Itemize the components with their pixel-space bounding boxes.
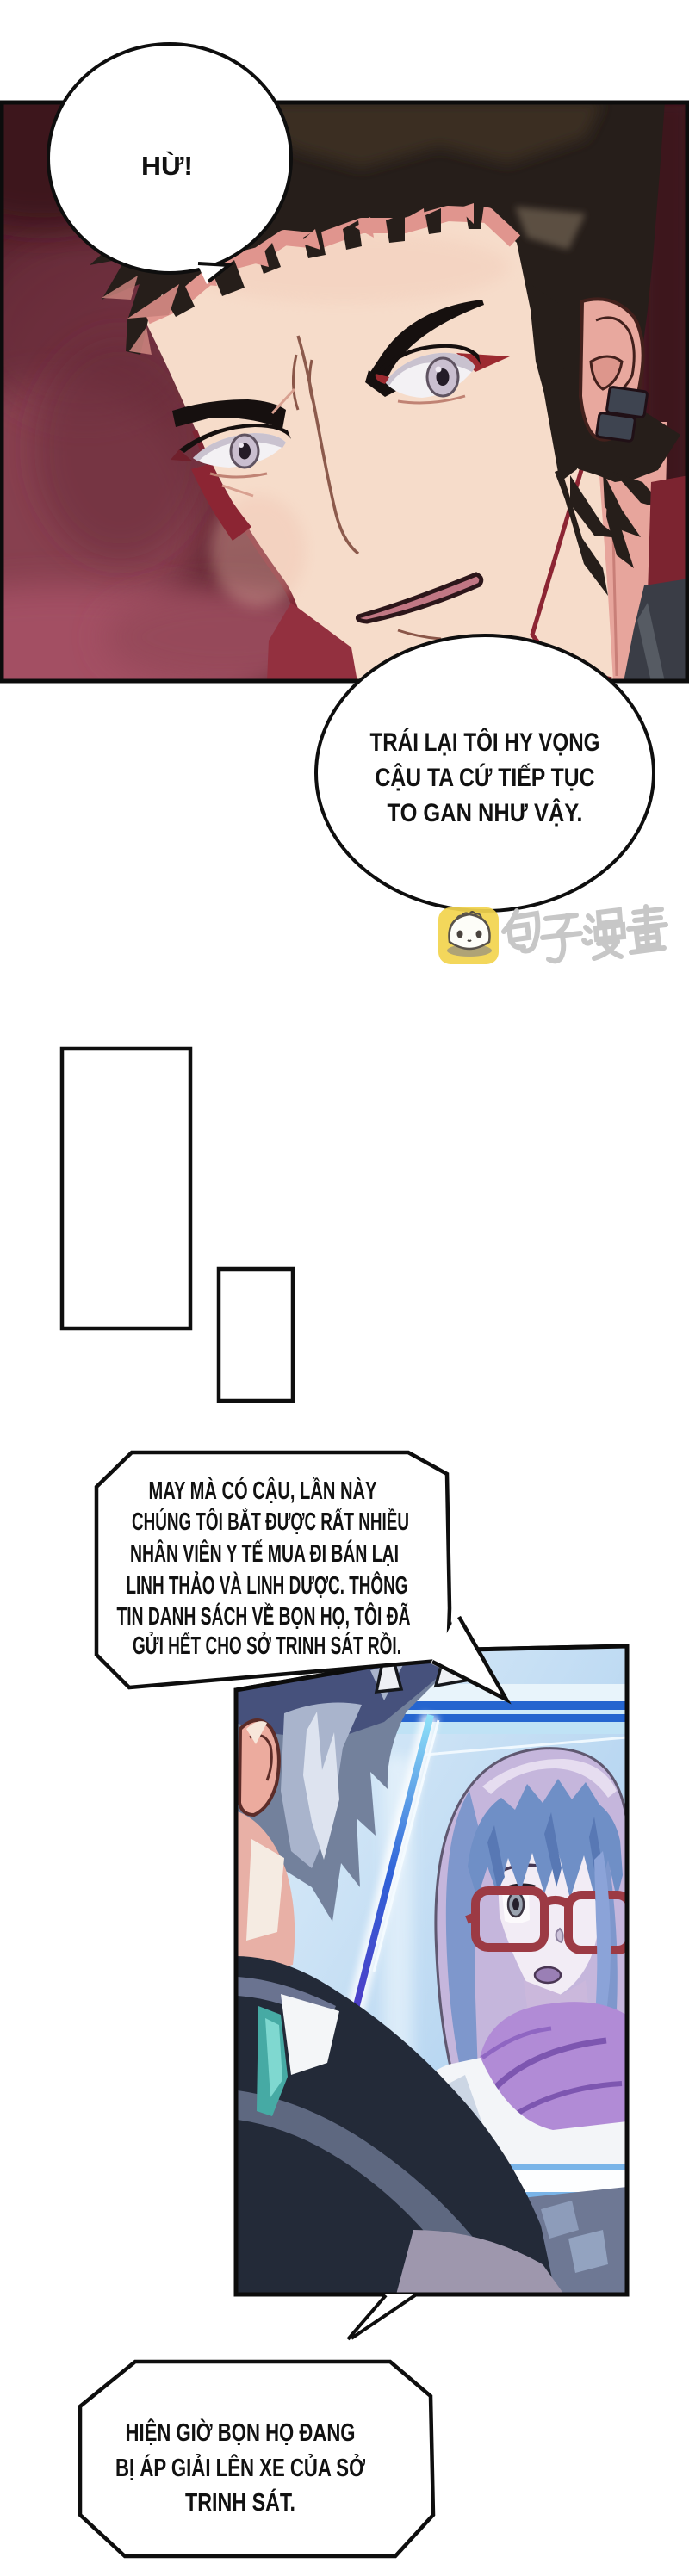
svg-text:TO GAN NHƯ VẬY.: TO GAN NHƯ VẬY.: [388, 798, 583, 827]
svg-text:CHÚNG TÔI BẮT ĐƯỢC RẤT NHIỀU: CHÚNG TÔI BẮT ĐƯỢC RẤT NHIỀU: [132, 1507, 409, 1536]
svg-text:BỊ ÁP GIẢI LÊN XE CỦA SỞ: BỊ ÁP GIẢI LÊN XE CỦA SỞ: [115, 2453, 365, 2482]
svg-text:LINH THẢO VÀ LINH DƯỢC. THÔNG: LINH THẢO VÀ LINH DƯỢC. THÔNG: [127, 1570, 408, 1600]
svg-text:MAY MÀ CÓ CẬU, LẦN NÀY: MAY MÀ CÓ CẬU, LẦN NÀY: [149, 1476, 377, 1505]
svg-text:GỬI HẾT CHO SỞ TRINH SÁT RỒI.: GỬI HẾT CHO SỞ TRINH SÁT RỒI.: [133, 1631, 401, 1660]
svg-text:HIỆN GIỜ BỌN HỌ ĐANG: HIỆN GIỜ BỌN HỌ ĐANG: [126, 2418, 356, 2447]
svg-text:TIN DANH SÁCH VỀ BỌN HỌ, TÔI Đ: TIN DANH SÁCH VỀ BỌN HỌ, TÔI ĐÃ: [117, 1601, 411, 1631]
svg-text:TRINH SÁT.: TRINH SÁT.: [185, 2487, 295, 2517]
svg-text:TRÁI LẠI TÔI HY VỌNG: TRÁI LẠI TÔI HY VỌNG: [370, 728, 600, 757]
svg-text:HỪ!: HỪ!: [141, 150, 193, 181]
svg-text:NHÂN VIÊN Y TẾ MUA ĐI BÁN LẠI: NHÂN VIÊN Y TẾ MUA ĐI BÁN LẠI: [130, 1539, 399, 1568]
svg-text:CẬU TA CỨ TIẾP TỤC: CẬU TA CỨ TIẾP TỤC: [376, 763, 595, 792]
